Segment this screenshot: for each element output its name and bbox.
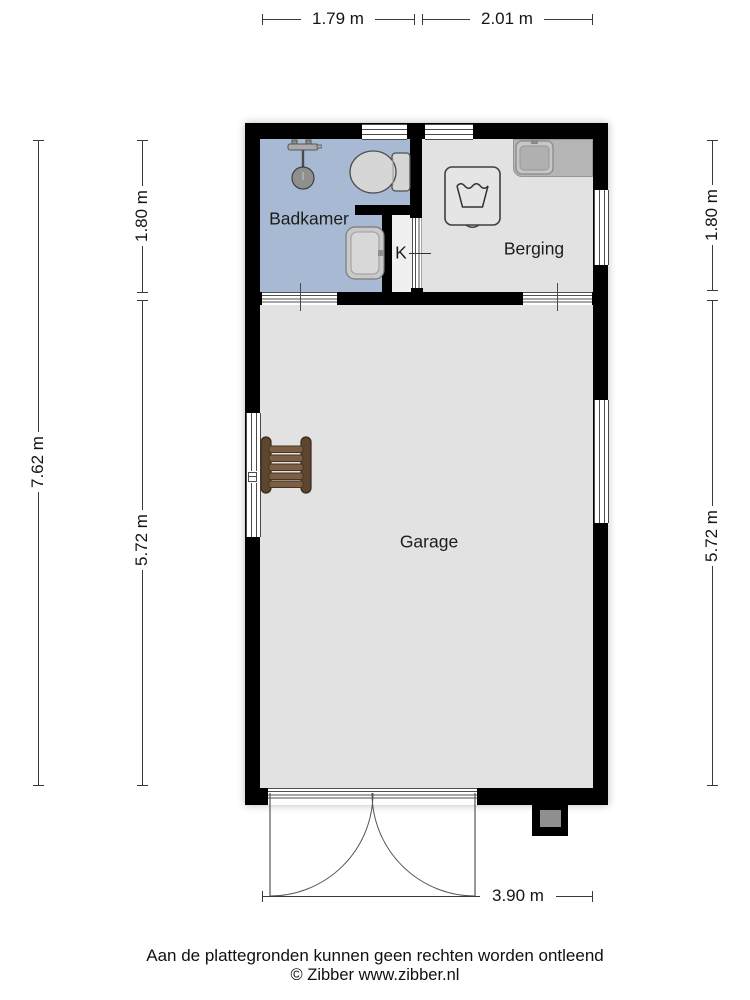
dim-tick (262, 891, 263, 902)
footer-disclaimer: Aan de plattegronden kunnen geen rechten… (0, 946, 750, 966)
bathroom-top-window (362, 124, 407, 140)
dim-label-bottom: 3.90 m (480, 886, 556, 906)
dim-label-left-total: 7.62 m (28, 432, 48, 492)
garage-door-swing (258, 789, 482, 901)
garage-right-window (594, 400, 609, 523)
storage-door-tick (557, 283, 558, 311)
dim-label-left-top: 1.80 m (132, 186, 152, 246)
dim-tick (137, 292, 148, 293)
closet-label: K (395, 243, 407, 264)
floor-plan: Badkamer Berging Garage K 1.79 m 2.01 m … (0, 0, 750, 1000)
dim-tick (33, 140, 44, 141)
bathroom-door-tick (300, 283, 301, 311)
wall-closet-stub (411, 288, 423, 300)
sink-icon (345, 226, 385, 280)
dim-tick (137, 300, 148, 301)
dim-tick (422, 14, 423, 25)
dim-tick (592, 891, 593, 902)
dim-tick (707, 290, 718, 291)
dim-tick (262, 14, 263, 25)
garage-label: Garage (400, 532, 458, 553)
dim-tick (707, 785, 718, 786)
bathroom-label: Badkamer (269, 209, 349, 230)
bench-icon (258, 435, 314, 495)
storage-label: Berging (504, 239, 564, 260)
dim-tick (707, 140, 718, 141)
storage-top-window (425, 124, 473, 140)
shower-icon (284, 139, 322, 191)
garage-left-window-mullion (247, 471, 258, 483)
dim-tick (33, 785, 44, 786)
dim-label-right-bottom: 5.72 m (702, 506, 722, 566)
dim-tick (592, 14, 593, 25)
footer-copyright: © Zibber www.zibber.nl (0, 966, 750, 985)
dim-tick (414, 14, 415, 25)
dim-tick (137, 785, 148, 786)
dim-label-right-top: 1.80 m (702, 185, 722, 245)
dim-tick (707, 300, 718, 301)
washing-machine-icon (443, 165, 502, 230)
storage-right-window (594, 190, 609, 265)
counter-sink-icon (515, 140, 555, 176)
dim-label-left-bottom: 5.72 m (132, 510, 152, 570)
dim-label-top-storage: 2.01 m (470, 9, 544, 29)
dim-label-top-bathroom: 1.79 m (301, 9, 375, 29)
chimney-core (540, 810, 561, 827)
wall-toilet-niche (355, 205, 422, 215)
closet-label-leader (409, 253, 431, 254)
toilet-icon (347, 149, 412, 195)
dim-tick (137, 140, 148, 141)
